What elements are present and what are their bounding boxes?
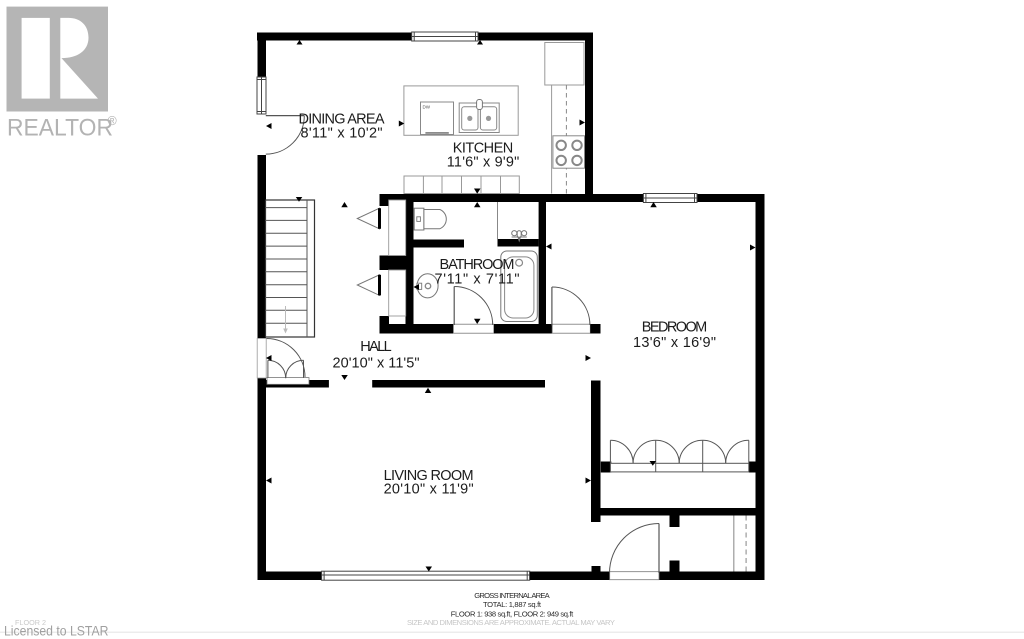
svg-text:SIZE AND DIMENSIONS ARE APPROX: SIZE AND DIMENSIONS ARE APPROXIMATE. ACT… (407, 618, 615, 627)
svg-text:Licensed to LSTAR: Licensed to LSTAR (4, 623, 109, 639)
svg-text:20'10" x 11'9": 20'10" x 11'9" (384, 482, 474, 498)
svg-text:DW: DW (423, 105, 431, 110)
svg-text:GROSS INTERNAL AREA: GROSS INTERNAL AREA (474, 591, 550, 600)
svg-text:FLOOR 1: 938 sq.ft, FLOOR 2: 9: FLOOR 1: 938 sq.ft, FLOOR 2: 949 sq.ft (451, 609, 574, 618)
svg-text:REALTOR: REALTOR (7, 115, 113, 142)
svg-text:8'11" x 10'2": 8'11" x 10'2" (301, 126, 383, 142)
svg-text:®: ® (108, 114, 118, 128)
svg-text:20'10" x 11'5": 20'10" x 11'5" (333, 356, 420, 372)
svg-text:13'6" x 16'9": 13'6" x 16'9" (633, 335, 716, 351)
svg-text:TOTAL: 1,887 sq.ft: TOTAL: 1,887 sq.ft (483, 600, 542, 609)
svg-text:BEDROOM: BEDROOM (642, 320, 708, 336)
svg-text:11'6" x 9'9": 11'6" x 9'9" (447, 155, 520, 171)
svg-text:HALL: HALL (360, 339, 392, 355)
svg-text:7'11" x 7'11": 7'11" x 7'11" (435, 272, 520, 288)
svg-text:BATHROOM: BATHROOM (440, 257, 515, 273)
